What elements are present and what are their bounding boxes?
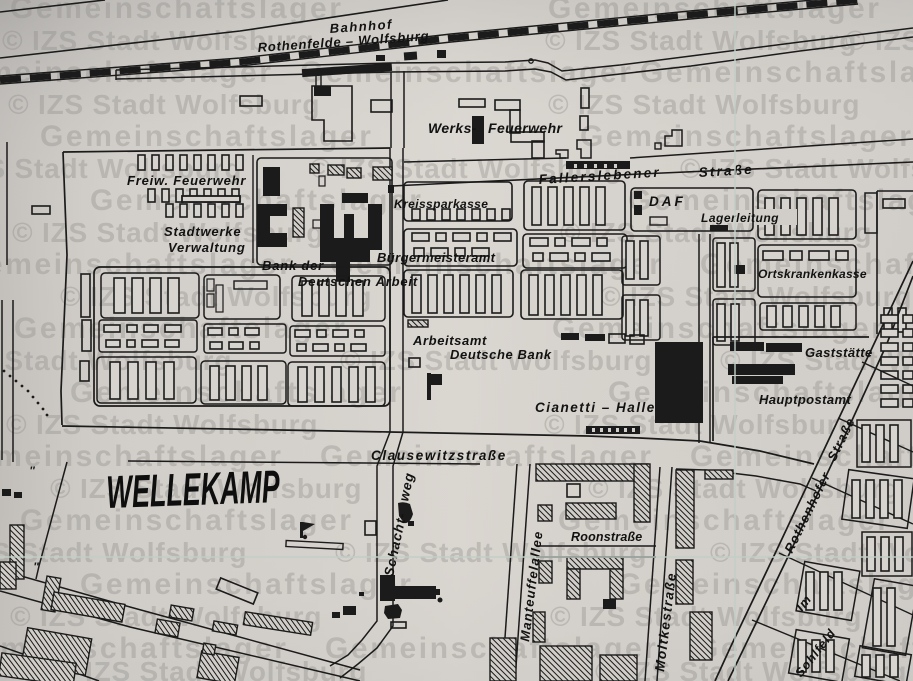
svg-text:Gemeinschaftslager: Gemeinschaftslager (0, 248, 294, 281)
svg-text:Bank der: Bank der (262, 258, 324, 273)
svg-text:Cianetti – Halle: Cianetti – Halle (535, 400, 656, 415)
svg-text:Stadtwerke: Stadtwerke (164, 224, 241, 239)
svg-text:Freiw. Feuerwehr: Freiw. Feuerwehr (127, 173, 246, 188)
svg-text:WELLEKAMP: WELLEKAMP (106, 460, 282, 517)
svg-text:Deutschen Arbeit: Deutschen Arbeit (298, 274, 418, 289)
svg-text:Lagerleitung: Lagerleitung (701, 211, 779, 225)
svg-text:Werks-: Werks- (428, 120, 477, 136)
svg-text:Gemeinschaftslager: Gemeinschaftslager (80, 568, 414, 601)
svg-text:Kreissparkasse: Kreissparkasse (394, 197, 488, 211)
svg-text:Hauptpostamt: Hauptpostamt (759, 392, 851, 407)
svg-text:Arbeitsamt: Arbeitsamt (412, 333, 487, 348)
svg-text:Verwaltung: Verwaltung (168, 240, 246, 255)
svg-text:Gemeinschaftslager: Gemeinschaftslager (10, 0, 344, 25)
svg-text:Clausewitzstraße: Clausewitzstraße (371, 448, 507, 463)
svg-text:Deutsche Bank: Deutsche Bank (450, 347, 552, 362)
svg-text:© IZS Stadt Wolfsburg: © IZS Stadt Wolfsburg (8, 89, 320, 120)
svg-text:Bürgermeisteramt: Bürgermeisteramt (377, 250, 496, 265)
svg-text:Feuerwehr: Feuerwehr (488, 120, 564, 136)
svg-text:Gemeinschaftslager: Gemeinschaftslager (580, 120, 913, 153)
svg-text:Ortskrankenkasse: Ortskrankenkasse (758, 267, 867, 281)
svg-text:Gaststätte: Gaststätte (805, 345, 873, 360)
svg-text:″: ″ (34, 561, 40, 573)
svg-text:DAF: DAF (649, 194, 686, 209)
svg-text:Gemeinschaftslager: Gemeinschaftslager (640, 56, 913, 89)
svg-text:© IZS Stadt Wolfsburg: © IZS Stadt Wolfsburg (548, 89, 860, 120)
svg-text:Roonstraße: Roonstraße (571, 530, 642, 544)
svg-text:© IZS Stadt Wolfsburg: © IZS Stadt Wolfsburg (6, 409, 318, 440)
svg-text:″: ″ (30, 465, 36, 477)
